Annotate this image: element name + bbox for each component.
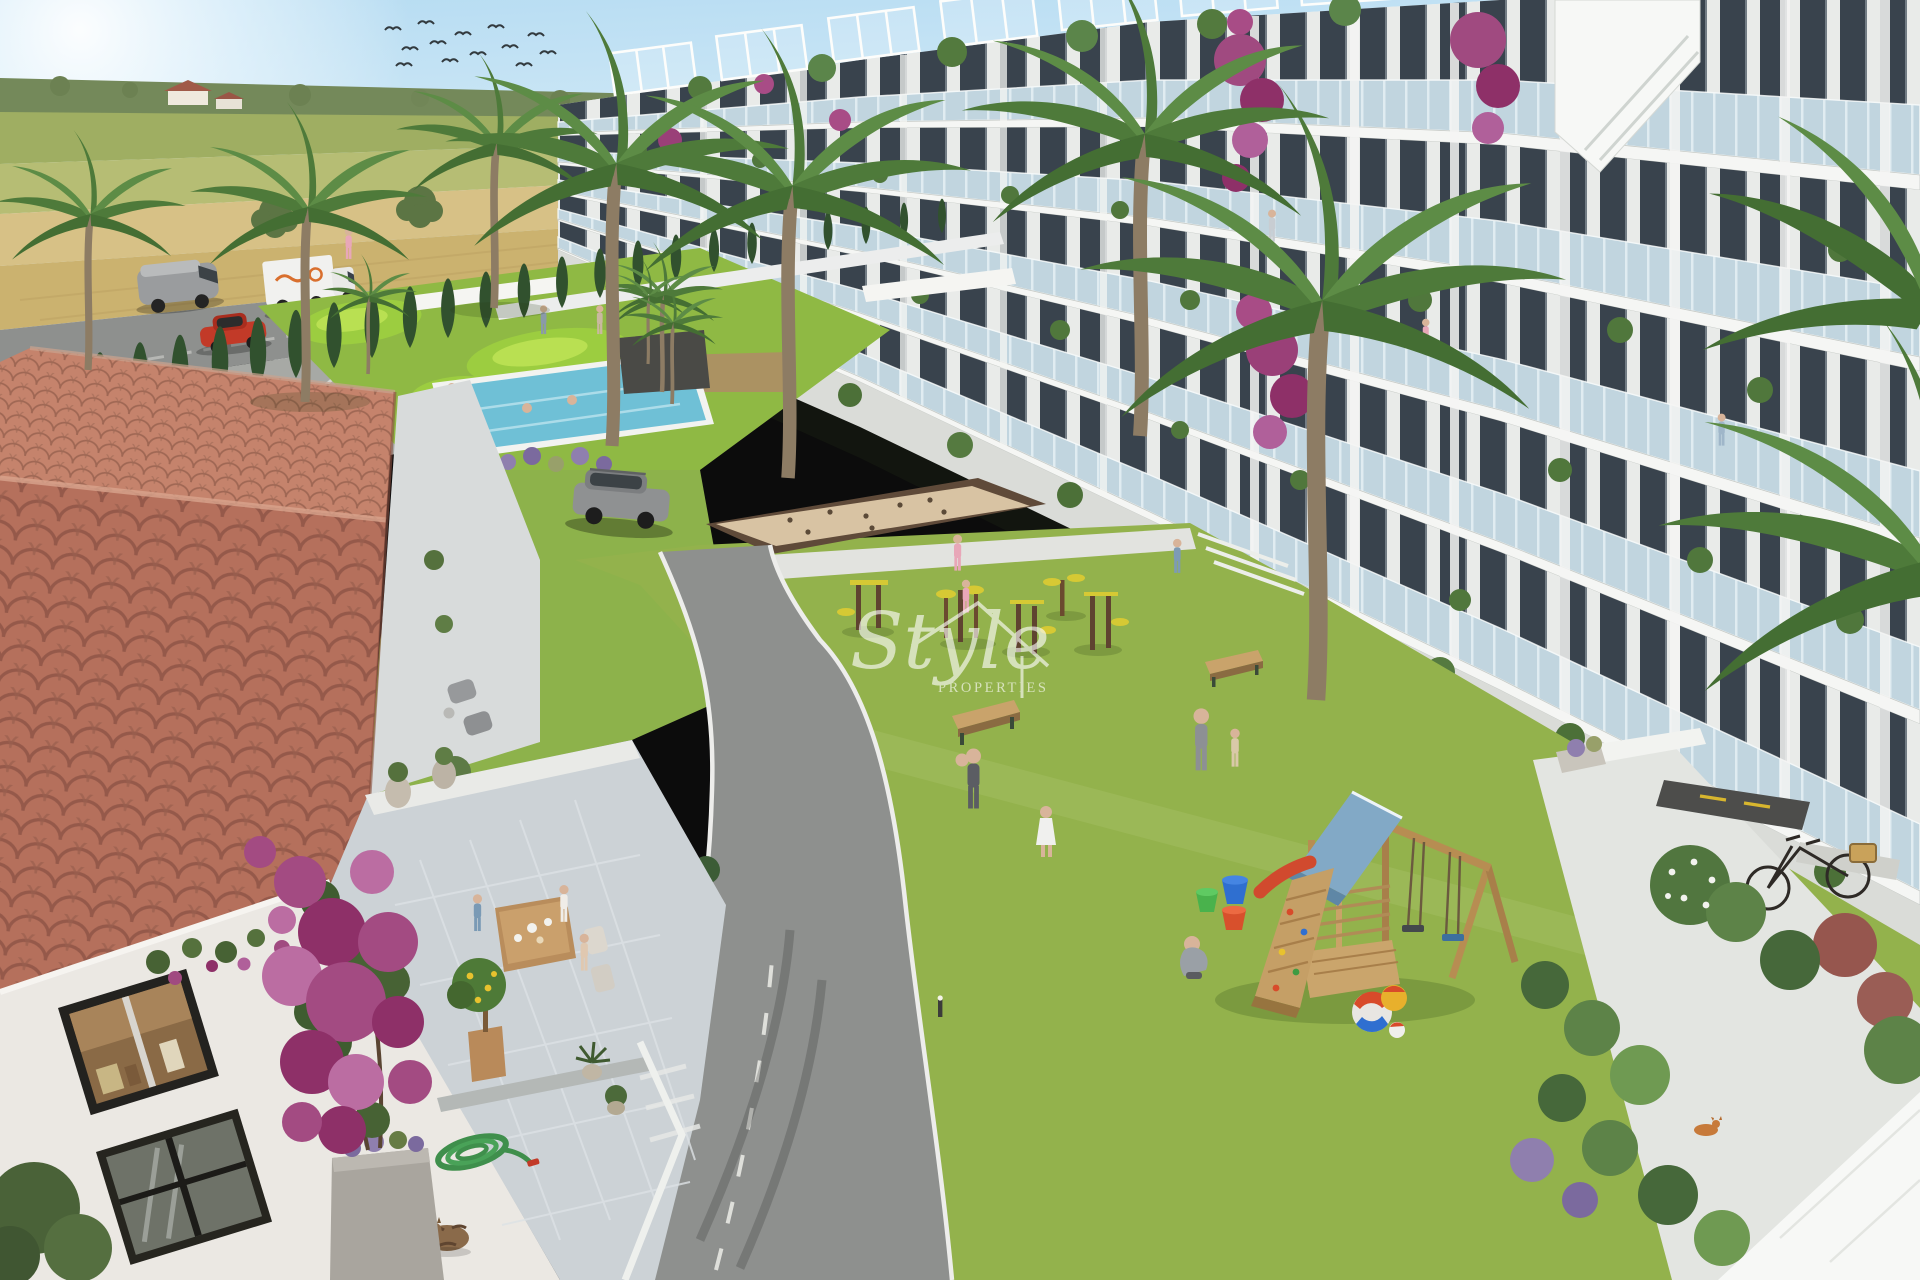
watermark: Style PROPERTIES xyxy=(850,597,1050,698)
render-image: Style PROPERTIES xyxy=(0,0,1920,1280)
watermark-caps: PROPERTIES xyxy=(938,680,1049,696)
toddler-held xyxy=(956,754,969,767)
